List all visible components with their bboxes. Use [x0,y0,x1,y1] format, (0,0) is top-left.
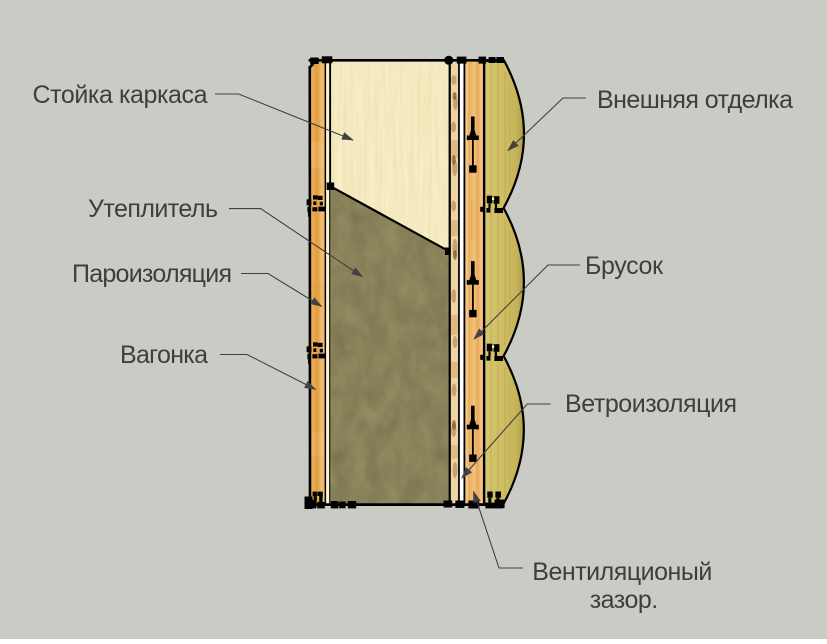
svg-text:Утеплитель: Утеплитель [88,195,218,223]
svg-text:Вагонка: Вагонка [120,341,208,369]
svg-text:зазор.: зазор. [590,586,659,614]
svg-text:Ветроизоляция: Ветроизоляция [565,390,737,418]
svg-text:Брусок: Брусок [585,252,664,280]
svg-text:Вентиляционый: Вентиляционый [532,558,712,586]
svg-text:Стойка каркаса: Стойка каркаса [33,81,208,109]
svg-text:Пароизоляция: Пароизоляция [72,260,232,288]
svg-text:Внешняя отделка: Внешняя отделка [597,86,793,114]
